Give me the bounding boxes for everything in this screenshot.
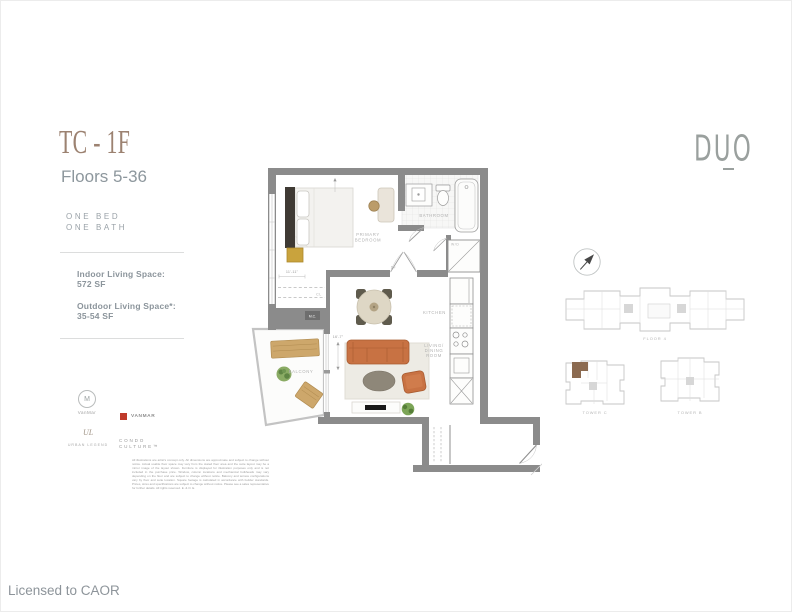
compass-icon: [571, 246, 603, 278]
outdoor-space-value: 35-54 SF: [77, 311, 114, 321]
keyplan-tower-left-label: TOWER C: [561, 410, 629, 415]
floor-range: Floors 5-36: [61, 167, 147, 187]
label-bedroom-2: BEDROOM: [355, 238, 381, 243]
partner-ul-mark: UL: [83, 428, 93, 437]
spec-bed: ONE BED: [66, 211, 127, 222]
bedroom-vanity-desk: [369, 188, 394, 222]
label-living-3: ROOM: [426, 353, 442, 358]
indoor-space-value: 572 SF: [77, 279, 106, 289]
window-band: [269, 194, 274, 304]
label-wd: W/D: [451, 243, 459, 247]
keyplan-tower-right: [656, 355, 724, 405]
bathroom-vanity: [406, 184, 432, 206]
partner-red-mark-icon: [120, 413, 127, 420]
floor-plant: [402, 403, 415, 416]
dim-bedroom-text: 11'-11": [286, 270, 299, 274]
keyplan-floor-label: FLOOR 4: [562, 336, 748, 341]
disclaimer-text: All illustrations are artist's concept o…: [132, 459, 269, 491]
label-bathroom: BATHROOM: [419, 213, 448, 218]
bedroom-bench: [287, 248, 303, 262]
partner-name-1: VanMar: [70, 410, 104, 415]
duo-logo-underline: [723, 168, 734, 170]
keyplan-tower-right-label: TOWER B: [656, 410, 724, 415]
floor-plan: PRIMARY BEDROOM BATHROOM W/D KITCHEN LIV…: [250, 148, 542, 500]
partner-name-3: URBAN LEGEND: [64, 443, 112, 447]
condo-culture-line2: CULTURE™: [119, 444, 159, 450]
armchair: [401, 370, 426, 394]
bathtub: [455, 179, 478, 232]
label-balcony: BALCONY: [289, 369, 314, 374]
page-title: TC - 1F: [59, 124, 130, 162]
tv-console: [352, 402, 400, 413]
dimension-bedroom: [279, 275, 305, 279]
indoor-space-label: Indoor Living Space:: [77, 269, 165, 279]
divider-top: [60, 252, 184, 253]
dim-living-text: 16'-7": [333, 335, 344, 339]
keyplan-tower-left: [561, 358, 629, 408]
partner-name-2: VANMAR: [131, 414, 155, 419]
label-bedroom-1: PRIMARY: [356, 232, 380, 237]
entry-closet: [434, 425, 450, 464]
balcony-glazing: [324, 329, 330, 417]
label-kitchen: KITCHEN: [423, 310, 446, 315]
outdoor-space-label: Outdoor Living Space*:: [77, 301, 176, 311]
circle-m-icon: M: [84, 396, 90, 403]
dining-set: [356, 289, 392, 325]
keyplan-floor-plate: [562, 284, 748, 336]
bed: [285, 187, 353, 248]
label-closet: CL: [316, 293, 322, 297]
sofa: [347, 340, 409, 364]
balcony-bench: [271, 339, 320, 358]
duo-logo: DUO: [694, 129, 753, 170]
coffee-table: [363, 371, 395, 391]
label-door: DF: [391, 266, 396, 270]
dimension-living: [336, 342, 339, 370]
label-mech: M.C.: [309, 315, 316, 319]
partner-logo-circle-m: M: [78, 390, 96, 408]
kitchen-strip: [450, 278, 473, 404]
spec-bath: ONE BATH: [66, 222, 127, 233]
floorplan-sheet: TC - 1F Floors 5-36 ONE BED ONE BATH Ind…: [0, 0, 792, 612]
partner-name-4: CONDO CULTURE™: [119, 438, 159, 451]
balcony-area: [253, 329, 324, 425]
divider-bottom: [60, 338, 184, 339]
license-footer: Licensed to CAOR: [8, 583, 120, 598]
